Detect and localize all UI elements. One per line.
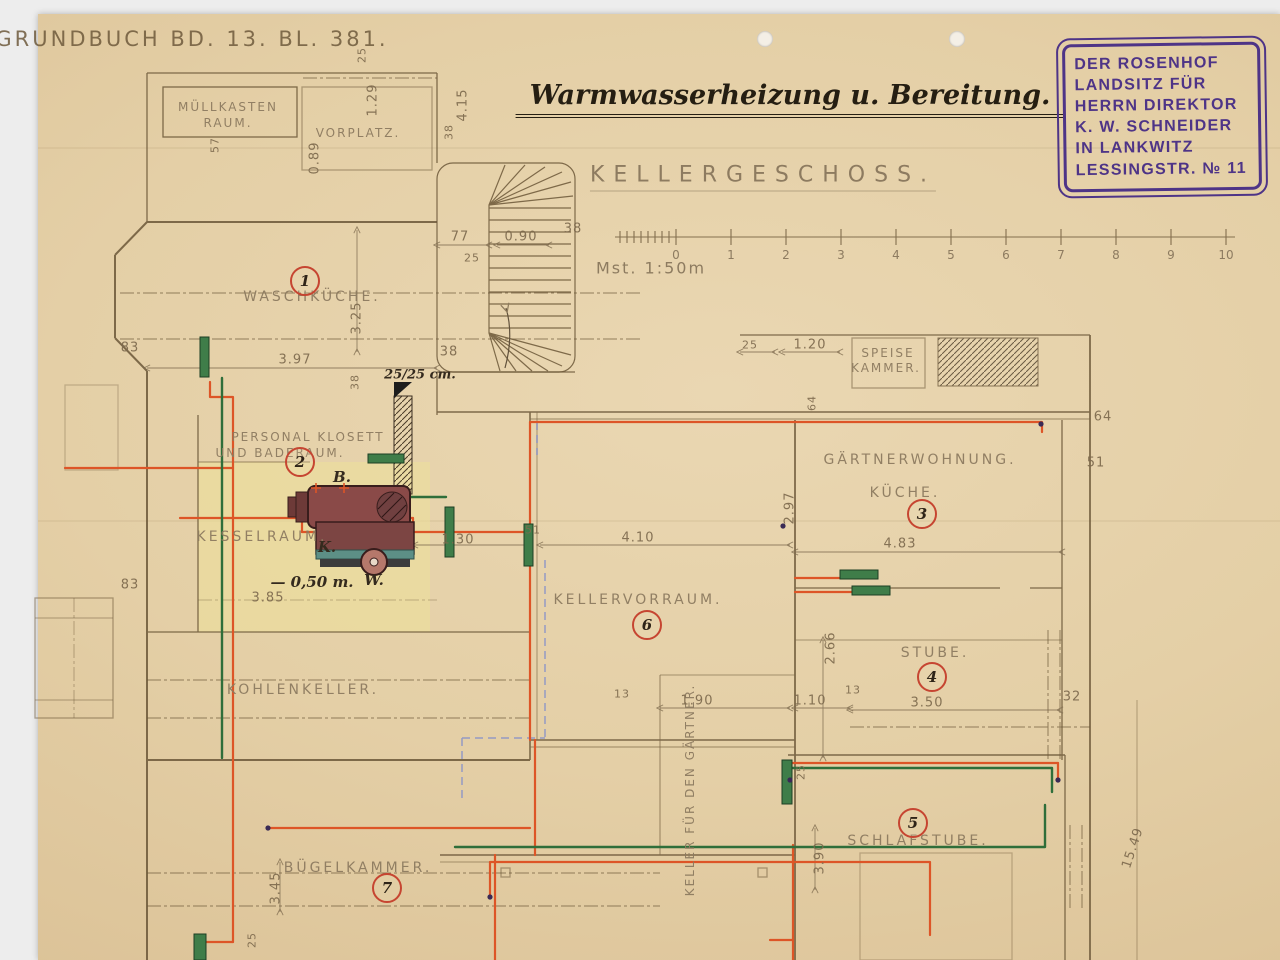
floor-label: KELLERGESCHOSS. [590, 163, 936, 192]
stamp-line: HERRN DIREKTOR [1075, 94, 1249, 118]
owner-stamp-border: DER ROSENHOF LANDSITZ FÜR HERRN DIREKTOR… [1062, 42, 1262, 192]
dim-label: 51 [1087, 456, 1106, 471]
dim-label: 38 [440, 345, 459, 360]
dim-label: 57 [209, 137, 222, 153]
dim-label: 25 [356, 47, 369, 63]
dim-label: 3.45 [269, 872, 284, 905]
dim-label: 32 [1063, 690, 1082, 705]
room-label-gaertnerkeller: KELLER FÜR DEN GÄRTNER. [683, 684, 697, 897]
scale-tick: 6 [1002, 248, 1010, 262]
scale-tick: 8 [1112, 248, 1120, 262]
flue-hatch [394, 338, 1038, 494]
room-number-7: 7 [372, 873, 402, 903]
dim-label: 3.97 [279, 353, 312, 368]
dim-label: 3.25 [350, 302, 365, 335]
room-label-muellkasten: MÜLLKASTEN [178, 100, 278, 114]
dim-label: 38 [443, 124, 456, 140]
dim-label: 3.90 [813, 842, 828, 875]
boiler-tank-label: B. [333, 468, 351, 486]
dim-label: 13 [614, 688, 630, 701]
drawing-title: Warmwasserheizung u. Bereitung. [516, 80, 1065, 118]
punch-hole [949, 31, 965, 47]
dim-label: 51 [525, 524, 541, 537]
scale-tick: 9 [1167, 248, 1175, 262]
blue-dashed-layer [462, 422, 545, 800]
room-label-speisekammer: SPEISE [861, 346, 914, 360]
room-number-1: 1 [290, 266, 320, 296]
flue-annotation: 25/25 cm. [384, 368, 456, 383]
room-label-klosett: PERSONAL KLOSETT [231, 430, 384, 444]
scale-label: Mst. 1:50m [596, 259, 706, 278]
dim-label: 83 [121, 578, 140, 593]
depth-annotation: — 0,50 m. [270, 573, 353, 591]
scale-tick: 0 [672, 248, 680, 262]
scale-tick: 3 [837, 248, 845, 262]
dim-label: 64 [806, 395, 819, 411]
room-label-kueche: KÜCHE. [870, 485, 941, 501]
room-label-muellkasten: RAUM. [203, 116, 252, 130]
room-number-4: 4 [917, 662, 947, 692]
pump-label: W. [364, 571, 384, 589]
dim-label: 25 [464, 252, 480, 265]
owner-stamp: DER ROSENHOF LANDSITZ FÜR HERRN DIREKTOR… [1056, 36, 1268, 199]
room-number-2: 2 [285, 447, 315, 477]
dim-label: 4.10 [622, 531, 655, 546]
room-label-vorplatz: VORPLATZ. [316, 126, 401, 140]
scale-tick: 1 [727, 248, 735, 262]
scale-tick: 2 [782, 248, 790, 262]
grundbuch-annotation: GRUNDBUCH BD. 13. BL. 381. [0, 27, 389, 51]
staircase [437, 163, 575, 372]
dim-label: 25 [246, 932, 259, 948]
stamp-line: IN LANKWITZ [1075, 136, 1249, 160]
dim-label: 1.29 [366, 84, 381, 117]
room-number-5: 5 [898, 808, 928, 838]
scale-tick: 7 [1057, 248, 1065, 262]
dim-label: 1.20 [794, 338, 827, 353]
scale-tick: 4 [892, 248, 900, 262]
room-label-buegelkammer: BÜGELKAMMER. [284, 860, 433, 876]
punch-hole [757, 31, 773, 47]
dim-label: 2.66 [824, 632, 839, 665]
dim-label: 38 [564, 222, 583, 237]
dim-label: 4.83 [884, 537, 917, 552]
room-label-gaertnerwohnung: GÄRTNERWOHNUNG. [823, 452, 1016, 468]
dim-label: 2.97 [783, 492, 798, 525]
dim-label: 83 [121, 341, 140, 356]
room-label-kellervorraum: KELLERVORRAUM. [553, 592, 722, 608]
dim-label: 1.10 [794, 694, 827, 709]
dim-label: 13 [845, 684, 861, 697]
dim-label: 4.15 [456, 89, 471, 122]
dim-label: 0.90 [505, 230, 538, 245]
room-label-stube: STUBE. [901, 645, 970, 661]
dim-label: 3.85 [252, 591, 285, 606]
room-number-6: 6 [632, 610, 662, 640]
scanned-heating-plan: { "header": { "grundbuch": "GRUNDBUCH BD… [0, 0, 1280, 960]
dim-label: 3.50 [911, 696, 944, 711]
dim-label: 38 [349, 374, 362, 390]
scale-bar [615, 229, 1235, 245]
dim-label: 0.89 [308, 142, 323, 175]
room-number-3: 3 [907, 499, 937, 529]
scale-tick: 5 [947, 248, 955, 262]
dim-label: 25 [795, 764, 808, 780]
dim-label: 25 [742, 339, 758, 352]
stamp-line: LESSINGSTR. № 11 [1076, 157, 1250, 181]
scale-tick: 10 [1218, 248, 1233, 262]
dim-label: 77 [451, 230, 470, 245]
dim-label: 1.90 [681, 694, 714, 709]
room-label-speisekammer: KAMMER. [851, 361, 921, 375]
dim-label: 64 [1094, 410, 1113, 425]
stamp-line: LANDSITZ FÜR [1074, 73, 1248, 97]
room-label-klosett: UND BADERAUM. [215, 446, 344, 460]
stamp-line: DER ROSENHOF [1074, 52, 1248, 76]
dim-label: 1.30 [442, 533, 475, 548]
stamp-line: K. W. SCHNEIDER [1075, 115, 1249, 139]
room-label-kohlenkeller: KOHLENKELLER. [227, 682, 379, 698]
kessel-label: K. [318, 538, 336, 556]
room-label-kesselraum: KESSELRAUM. [197, 529, 328, 545]
